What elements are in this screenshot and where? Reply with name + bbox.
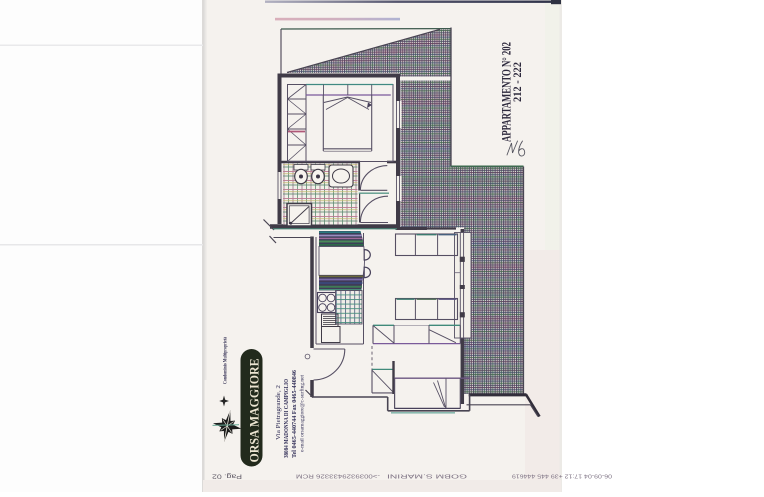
svg-text:ORSA MAGGIORE: ORSA MAGGIORE [247,359,262,463]
svg-text:Condominio Multiproprietà: Condominio Multiproprietà [223,337,229,384]
svg-text:GOBM S.MARINI: GOBM S.MARINI [386,473,467,479]
svg-text:e-mail orsamaggiore@c-surfing: e-mail orsamaggiore@c-surfing.net [299,375,306,452]
svg-text:Via Pietragrande, 2: Via Pietragrande, 2 [275,385,282,440]
svg-text:212 - 222: 212 - 222 [512,62,524,102]
svg-text:Tel 0465-440744 Fax 0465-4: Tel 0465-440744 Fax 0465-440846 [292,370,298,458]
svg-text:->0039329433326 RCM: ->0039329433326 RCM [296,473,380,479]
svg-text:38084 MADONNA DI CAMPIGLIO: 38084 MADONNA DI CAMPIGLIO [283,379,290,458]
svg-text:Pag. 02: Pag. 02 [211,473,242,480]
svg-text:06-09-04 17:12 +39 445 44461: 06-09-04 17:12 +39 445 444619 [512,473,612,479]
